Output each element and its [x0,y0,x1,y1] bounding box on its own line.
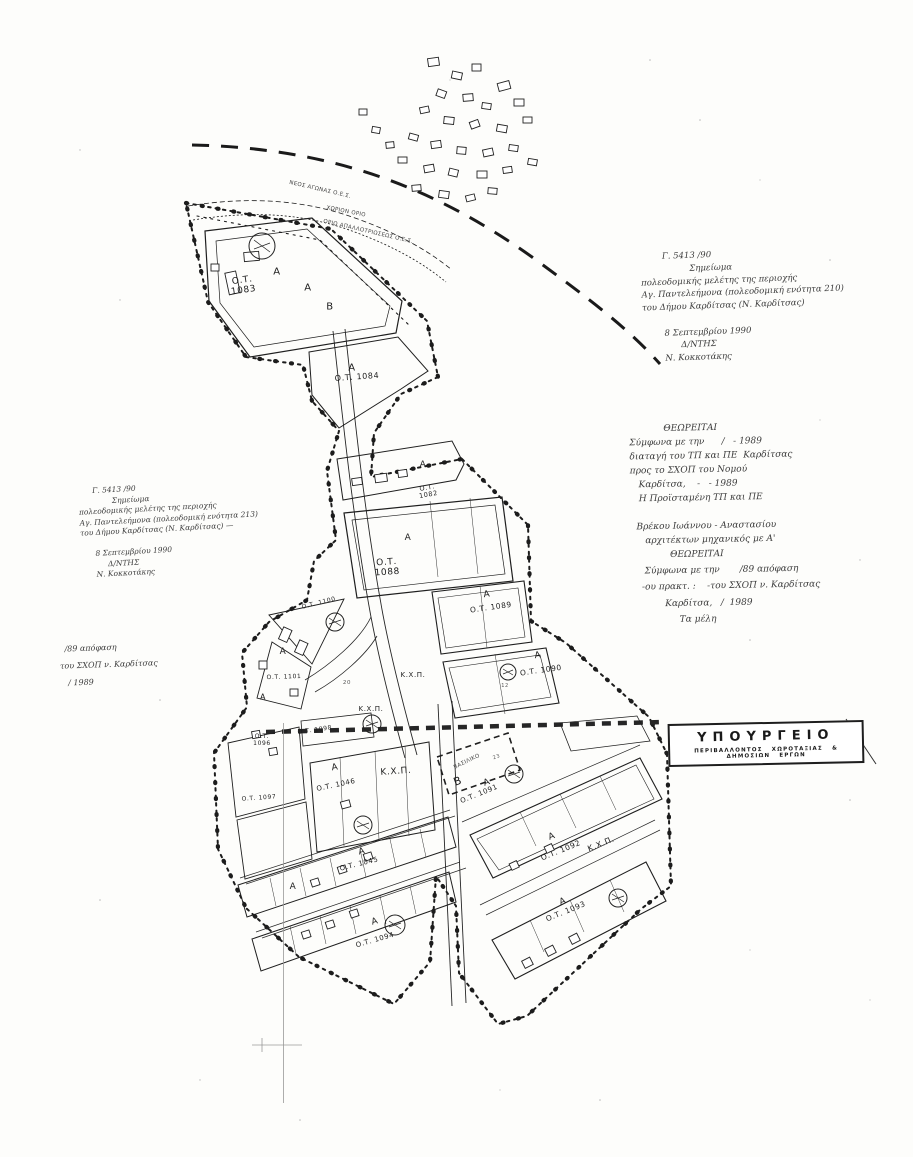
theoreitai-note-b: ΘΕΩΡΕΙΤΑΙ Σύμφωνα με την /89 απόφαση -ου… [641,544,821,628]
theoreitai-note-a: ΘΕΩΡΕΙΤΑΙ Σύμφωνα με την / - 1989 διαταγ… [629,421,794,549]
scanned-urban-plan-sheet: Ο.Τ. 1083Ο.Τ. 1084Ο.Τ. 1082Ο.Τ. 1088Ο.Τ.… [0,0,913,1157]
tree-symbols [249,233,627,935]
boundary-outline [186,203,671,1024]
stamp-title: ΥΠΟΥΡΓΕΙΟ [676,727,856,746]
decision-note-left: /89 απόφαση του ΣΧΟΠ ν. Καρδίτσας / 1989 [59,638,159,692]
approval-note-right: Γ. 5413 /90 Σημείωμα πολεοδομικής μελέτη… [640,245,846,367]
building-blocks [205,218,666,979]
village-houses [359,57,537,202]
stamp-subtitle: ΠΕΡΙΒΑΛΛΟΝΤΟΣ ΧΩΡΟΤΑΞΙΑΣ & ΔΗΜΟΣΙΩΝ ΕΡΓΩ… [676,745,856,761]
block-buildings [211,251,580,968]
approval-note-left: Γ. 5413 /90 Σημείωμα πολεοδομικής μελέτη… [78,477,261,581]
ministry-stamp: ΥΠΟΥΡΓΕΙΟ ΠΕΡΙΒΑΛΛΟΝΤΟΣ ΧΩΡΟΤΑΞΙΑΣ & ΔΗΜ… [668,720,865,767]
